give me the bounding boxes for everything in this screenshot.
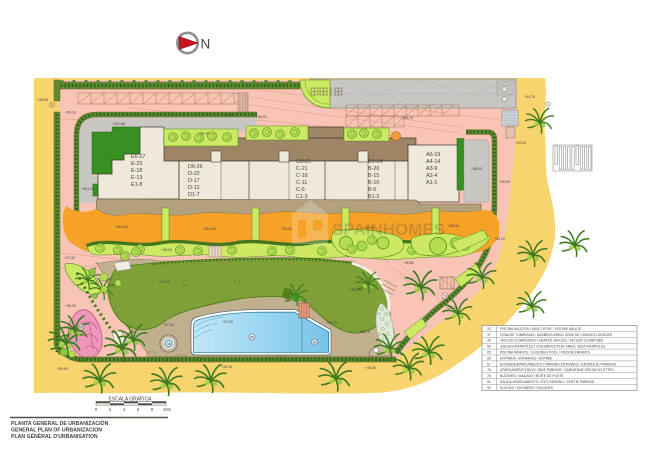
svg-text:+38,145: +38,145 (203, 227, 216, 231)
svg-text:B-20: B-20 (368, 166, 379, 172)
svg-text:+37,50: +37,50 (159, 280, 170, 284)
svg-text:PLAN GÉNÉRAL D'URBANISATION: PLAN GÉNÉRAL D'URBANISATION (11, 432, 98, 440)
svg-text:JUEGOS INFANTILES / CHILDREN'S: JUEGOS INFANTILES / CHILDREN'S PLAY AREA… (500, 345, 606, 349)
svg-text:+36,75: +36,75 (359, 330, 370, 334)
svg-text:DUCHAS / SHOWERS / DOUCHES: DUCHAS / SHOWERS / DOUCHES (500, 386, 554, 390)
svg-text:65: 65 (250, 335, 254, 339)
svg-text:A2-4: A2-4 (426, 173, 437, 179)
svg-text:D1-7: D1-7 (188, 192, 200, 198)
svg-text:+38,00: +38,00 (198, 132, 209, 136)
svg-text:SPAINHOMES: SPAINHOMES (332, 220, 445, 239)
svg-text:59: 59 (487, 345, 491, 349)
svg-text:+35,80: +35,80 (403, 261, 414, 265)
svg-text:78: 78 (487, 374, 491, 378)
svg-text:PISCINA INFANTIL / CHILDREN PO: PISCINA INFANTIL / CHILDREN POOL / PISCI… (500, 351, 591, 355)
svg-text:32: 32 (487, 327, 491, 331)
svg-text:+38,145: +38,145 (115, 225, 128, 229)
svg-text:+36,75: +36,75 (326, 321, 337, 325)
svg-text:ENTRADA APARCAMIENTO / PARKING: ENTRADA APARCAMIENTO / PARKING ENTRANCE … (500, 361, 617, 366)
svg-text:37: 37 (487, 333, 491, 337)
svg-text:SALIDA APARCAMIENTO / EXIT PAR: SALIDA APARCAMIENTO / EXIT PARKING / SOR… (500, 380, 595, 384)
svg-text:+36,50: +36,50 (365, 366, 376, 370)
svg-text:D-22: D-22 (188, 171, 200, 177)
svg-text:C1-3: C1-3 (296, 194, 308, 200)
svg-text:66: 66 (487, 356, 491, 360)
svg-text:E1-8: E1-8 (131, 182, 142, 188)
svg-text:ENTRADA / ENTRANCE / ENTRÉE: ENTRADA / ENTRANCE / ENTRÉE (500, 355, 553, 360)
svg-text:+35,75: +35,75 (402, 116, 413, 120)
svg-text:+37,35: +37,35 (222, 113, 233, 117)
svg-text:32: 32 (313, 340, 317, 344)
svg-text:C6-25: C6-25 (296, 159, 311, 165)
svg-text:E-23: E-23 (131, 161, 142, 167)
svg-text:38: 38 (487, 339, 491, 343)
svg-text:E-13: E-13 (131, 175, 142, 181)
svg-text:+37,30: +37,30 (64, 256, 75, 260)
svg-text:+35,15: +35,15 (494, 237, 505, 241)
svg-text:C-16: C-16 (296, 173, 308, 179)
svg-text:B-15: B-15 (368, 173, 379, 179)
svg-text:76: 76 (443, 294, 447, 298)
svg-text:N: N (201, 37, 211, 52)
svg-text:A6-19: A6-19 (426, 152, 440, 158)
svg-text:+36,50: +36,50 (57, 367, 68, 371)
svg-text:A4-14: A4-14 (426, 159, 440, 165)
svg-text:C-21: C-21 (296, 166, 308, 172)
svg-text:+38,00: +38,00 (256, 115, 267, 119)
svg-text:+37,50: +37,50 (163, 323, 174, 327)
svg-text:B-10: B-10 (368, 180, 379, 186)
svg-text:+38,10: +38,10 (65, 111, 76, 115)
svg-text:+38,00: +38,00 (471, 167, 482, 171)
svg-text:65: 65 (487, 351, 491, 355)
svg-text:+38,00: +38,00 (161, 248, 172, 252)
svg-text:+38,145: +38,145 (112, 122, 125, 126)
svg-text:E6-27: E6-27 (131, 154, 145, 160)
svg-text:JACUZZI CLIMATIZADO / HEATED J: JACUZZI CLIMATIZADO / HEATED JACUZZI / J… (500, 338, 604, 343)
svg-text:81: 81 (487, 380, 491, 384)
svg-text:+36,75: +36,75 (350, 288, 361, 292)
svg-text:A3-9: A3-9 (426, 166, 437, 172)
svg-text:+35,50: +35,50 (499, 180, 510, 184)
svg-text:76: 76 (487, 368, 491, 372)
svg-text:+36,00: +36,00 (221, 365, 232, 369)
svg-text:D-17: D-17 (188, 178, 200, 184)
svg-text:59: 59 (79, 325, 83, 329)
svg-text:+38,145: +38,145 (81, 187, 94, 191)
svg-text:E-18: E-18 (131, 168, 142, 174)
svg-text:+38,00: +38,00 (448, 224, 459, 228)
svg-text:+34,75: +34,75 (524, 95, 535, 99)
svg-text:B-5: B-5 (368, 187, 376, 193)
svg-text:D6-26: D6-26 (188, 164, 203, 170)
svg-text:10m: 10m (163, 407, 172, 412)
svg-text:90: 90 (487, 386, 491, 390)
svg-text:PLANTA GENERAL DE URBANIZACIÓN: PLANTA GENERAL DE URBANIZACIÓN (11, 419, 109, 427)
svg-text:+38,05: +38,05 (37, 98, 48, 102)
svg-text:C-11: C-11 (296, 180, 307, 186)
svg-text:D-12: D-12 (188, 185, 200, 191)
svg-text:+34,90: +34,90 (515, 141, 526, 145)
svg-text:A1-1: A1-1 (426, 180, 437, 186)
svg-text:+37,50: +37,50 (222, 320, 233, 324)
svg-text:BUZONES / MAILBOX / BOÎTE DE P: BUZONES / MAILBOX / BOÎTE DE POSTE (500, 374, 564, 378)
svg-text:+38,30: +38,30 (281, 227, 292, 231)
svg-text:ZONA DE TUMBONAS / SUNBEDS ARE: ZONA DE TUMBONAS / SUNBEDS AREA / ZONE D… (500, 333, 613, 337)
svg-text:B1-2: B1-2 (368, 194, 379, 200)
svg-text:+35,75: +35,75 (446, 306, 457, 310)
svg-text:PISCINA ADULTOS / ADULT POOL /: PISCINA ADULTOS / ADULT POOL / PISCINE A… (500, 327, 582, 331)
svg-text:C-6: C-6 (296, 187, 305, 193)
svg-text:B6-24: B6-24 (368, 159, 382, 165)
svg-text:38: 38 (167, 342, 171, 346)
svg-text:APARCAMIENTO BICIS / BIKE PARK: APARCAMIENTO BICIS / BIKE PARKING / GARD… (500, 368, 614, 372)
svg-text:67: 67 (487, 362, 491, 366)
svg-text:+36,30: +36,30 (65, 304, 76, 308)
svg-text:GENERAL PLAN OF URBANIZACION: GENERAL PLAN OF URBANIZACION (11, 428, 102, 434)
